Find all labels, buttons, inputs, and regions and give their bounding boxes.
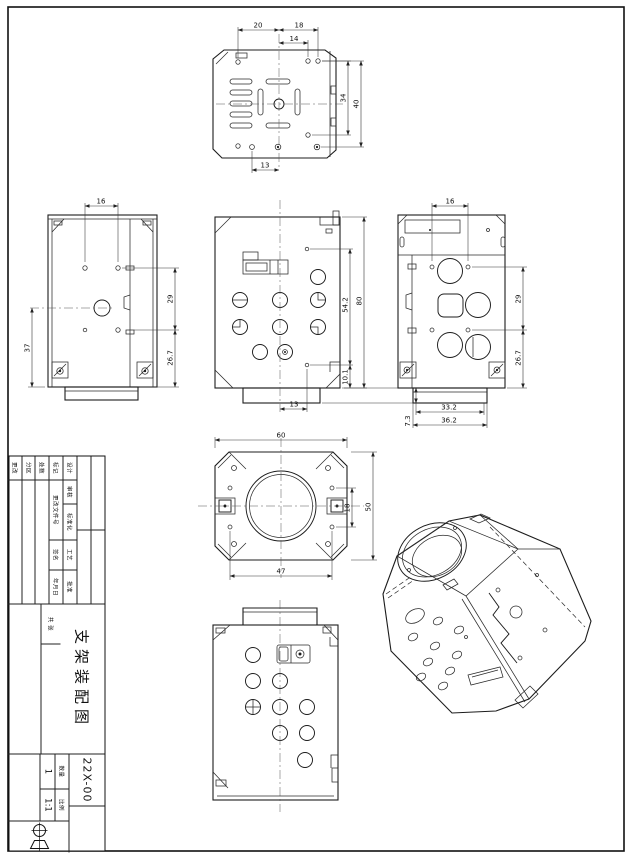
titleblock-role-approve: 批准 xyxy=(62,570,76,604)
dim-label: 47 xyxy=(277,568,286,576)
top-view: 20 18 14 34 40 13 xyxy=(213,22,364,174)
dim-label: 80 xyxy=(356,297,364,306)
dim-label: 13 xyxy=(261,162,270,170)
title-block: 设计 审核 标准化 工艺 批准 标记 更改文件号 签名 年月日 处数 分区 更改… xyxy=(8,455,105,851)
titleblock-role-design: 设计 xyxy=(62,456,76,480)
dim-label: 36.2 xyxy=(441,417,457,425)
titleblock-rev-change: 更改 xyxy=(7,456,21,480)
scale-value: 1:1 xyxy=(39,789,54,821)
titleblock-rev-mark: 标记 xyxy=(48,456,62,480)
titleblock-empty-cell xyxy=(90,456,104,530)
front-face-view: 60 50 18 47 xyxy=(198,432,377,581)
dim-label: 26.7 xyxy=(515,350,523,366)
qty-label: 数量 xyxy=(54,754,68,789)
titleblock-empty-cell xyxy=(21,480,34,604)
dim-label: 16 xyxy=(446,198,455,206)
titleblock-rev-changefile: 更改文件号 xyxy=(48,480,62,540)
titleblock-sheet-count: 共 张 xyxy=(40,604,60,644)
dim-label: 60 xyxy=(277,432,286,440)
dim-label: 34 xyxy=(340,93,348,102)
titleblock-empty-cell xyxy=(76,456,90,530)
lens-barrel xyxy=(388,511,477,592)
dim-label: 18 xyxy=(344,504,352,513)
dim-label: 13 xyxy=(290,401,299,409)
titleblock-empty-cell xyxy=(7,480,21,604)
dim-label: 33.2 xyxy=(441,404,457,412)
dim-label: 20 xyxy=(254,22,263,30)
dim-label: 16 xyxy=(97,198,106,206)
titleblock-role-standard: 标准化 xyxy=(62,504,76,540)
right-side-view: 16 29 26.7 33.2 36.2 xyxy=(398,198,527,429)
titleblock-rev-date: 年月日 xyxy=(48,570,62,604)
drawing-title: 支架装配图 xyxy=(60,604,104,754)
dim-label: 18 xyxy=(295,22,304,30)
titleblock-rev-zone: 分区 xyxy=(21,456,34,480)
qty-value: 1 xyxy=(39,754,54,789)
dim-label: 14 xyxy=(290,35,299,43)
drawing-number: 22X-00 xyxy=(68,754,104,806)
titleblock-rev-sign: 签名 xyxy=(48,540,62,570)
titleblock-role-check: 审核 xyxy=(62,480,76,504)
projection-symbol-cell xyxy=(7,821,68,852)
isometric-view xyxy=(383,511,591,713)
titleblock-empty-cell xyxy=(7,754,39,821)
left-side-view: 16 37 29 26.7 xyxy=(24,198,180,401)
dim-label: 40 xyxy=(353,100,361,109)
dim-label: 54.2 xyxy=(342,297,350,313)
dim-label: 26.7 xyxy=(167,350,175,366)
projection-symbol-icon xyxy=(10,821,68,851)
drawing-sheet: 20 18 14 34 40 13 xyxy=(0,0,632,864)
titleblock-empty-cell xyxy=(90,530,104,604)
titleblock-empty-cell xyxy=(7,604,40,754)
dim-label: 7.3 xyxy=(404,415,412,426)
front-view: 80 54.2 10.1 13 7.3 xyxy=(215,200,419,427)
titleblock-empty-cell xyxy=(40,644,60,754)
dim-label: 10.1 xyxy=(342,369,350,385)
scale-label: 比例 xyxy=(54,789,68,821)
titleblock-role-process: 工艺 xyxy=(62,540,76,570)
titleblock-empty-cell xyxy=(34,480,48,604)
dim-label: 29 xyxy=(515,295,523,304)
titleblock-empty-cell xyxy=(76,530,90,604)
dim-label: 50 xyxy=(365,503,373,512)
dim-label: 29 xyxy=(167,295,175,304)
dim-label: 37 xyxy=(24,344,32,353)
back-view xyxy=(213,600,338,812)
titleblock-empty-cell xyxy=(68,806,104,852)
titleblock-rev-count: 处数 xyxy=(34,456,48,480)
